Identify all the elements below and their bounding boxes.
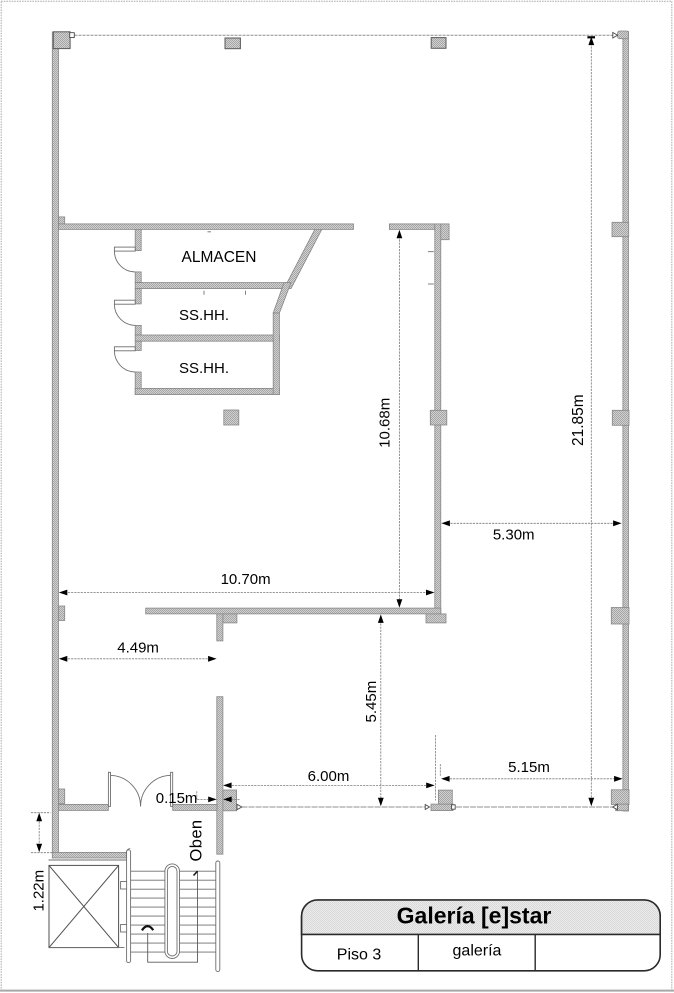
svg-text:10.70m: 10.70m xyxy=(221,571,271,588)
svg-text:10.68m: 10.68m xyxy=(377,398,394,448)
svg-text:Galería [e]star: Galería [e]star xyxy=(397,903,552,929)
svg-text:5.45m: 5.45m xyxy=(363,681,380,723)
svg-text:4.49m: 4.49m xyxy=(117,639,159,656)
svg-text:Piso 3: Piso 3 xyxy=(337,947,382,964)
svg-text:5.30m: 5.30m xyxy=(493,527,535,544)
svg-text:ALMACEN: ALMACEN xyxy=(182,249,257,266)
svg-text:Oben: Oben xyxy=(188,820,206,862)
svg-text:0.15m: 0.15m xyxy=(156,790,198,807)
svg-text:1.22m: 1.22m xyxy=(30,870,47,912)
svg-text:5.15m: 5.15m xyxy=(508,759,550,776)
svg-text:SS.HH.: SS.HH. xyxy=(179,360,229,377)
svg-text:6.00m: 6.00m xyxy=(308,768,350,785)
svg-text:21.85m: 21.85m xyxy=(570,394,587,446)
svg-text:SS.HH.: SS.HH. xyxy=(179,307,229,324)
svg-text:galería: galería xyxy=(453,942,502,959)
